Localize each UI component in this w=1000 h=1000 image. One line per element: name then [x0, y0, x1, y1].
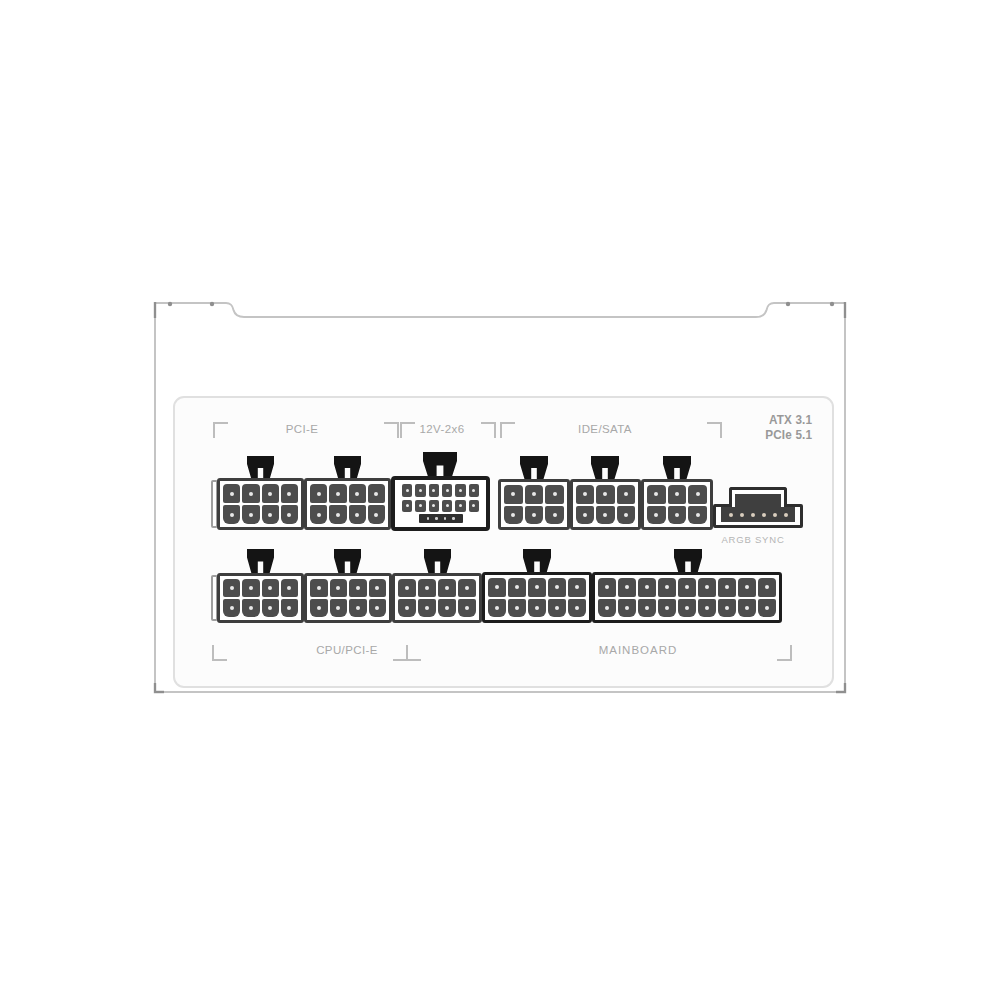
- pin-socket: [281, 579, 298, 597]
- pin-socket: [438, 579, 456, 597]
- pin-socket: [223, 505, 240, 524]
- pin-socket: [368, 505, 385, 524]
- pin-socket: [758, 599, 776, 618]
- pin-socket: [349, 599, 367, 617]
- pin-socket: [242, 505, 259, 524]
- pin-socket: [242, 484, 259, 503]
- pin-socket: [548, 578, 566, 597]
- connector-cpu-pcie-1: [217, 573, 304, 623]
- screw: [830, 302, 834, 306]
- screw: [210, 302, 214, 306]
- argb-sync-pin-row: [721, 507, 795, 522]
- pin-socket: [618, 578, 636, 597]
- pin-socket: [455, 484, 465, 497]
- pin-socket: [545, 506, 564, 525]
- pin-socket: [525, 485, 544, 504]
- pin-socket: [528, 578, 546, 597]
- pin-socket: [576, 485, 594, 504]
- section-corner-bracket: [400, 422, 415, 438]
- pin-socket: [329, 505, 346, 524]
- pin-socket: [738, 599, 756, 618]
- psu-product-image: PCI-E 12V-2x6 IDE/SATA CPU/PCI-E MAINBOA…: [0, 0, 1000, 1000]
- pin-socket: [718, 578, 736, 597]
- section-corner-bracket: [384, 422, 399, 438]
- pin-socket: [458, 599, 476, 617]
- pin-socket: [329, 484, 346, 503]
- pin-socket: [438, 599, 456, 617]
- pin-socket: [310, 579, 328, 597]
- pin-socket: [242, 579, 259, 597]
- pin-socket: [223, 599, 240, 617]
- badge-atx: ATX 3.1: [765, 412, 812, 427]
- pin-socket: [415, 500, 425, 513]
- pin-socket: [415, 484, 425, 497]
- pin-socket: [223, 484, 240, 503]
- screw: [168, 302, 172, 306]
- connector-ide-sata-3: [641, 479, 713, 530]
- pin-socket: [262, 599, 279, 617]
- pin-socket: [429, 500, 439, 513]
- pin-socket: [398, 579, 416, 597]
- pin-socket: [617, 506, 635, 525]
- pin-socket: [349, 505, 366, 524]
- sense-pin: [435, 517, 438, 520]
- pin-socket: [548, 599, 566, 618]
- pin-socket: [658, 578, 676, 597]
- section-corner-bracket: [213, 422, 228, 438]
- section-corner-bracket: [777, 645, 792, 661]
- section-corner-bracket: [500, 422, 515, 438]
- pin-socket: [310, 599, 328, 617]
- connector-mainboard-1: [482, 572, 592, 623]
- pin-socket: [402, 484, 412, 497]
- pin-socket: [488, 599, 506, 618]
- connector-12v-2x6: [391, 476, 490, 531]
- badge-pcie: PCIe 5.1: [765, 427, 812, 442]
- connector-ide-sata-1: [498, 479, 570, 530]
- pin-socket: [330, 579, 348, 597]
- pin-socket: [349, 484, 366, 503]
- pin-socket: [688, 485, 707, 504]
- pin-socket: [617, 485, 635, 504]
- argb-pin: [773, 513, 777, 517]
- section-label-mainboard: MAINBOARD: [599, 644, 678, 656]
- pin-socket: [647, 485, 666, 504]
- pin-socket: [638, 599, 656, 618]
- pin-socket: [618, 599, 636, 618]
- sense-pin: [427, 517, 430, 520]
- pin-socket: [369, 579, 387, 597]
- section-corner-bracket: [212, 645, 227, 661]
- pin-socket: [369, 599, 387, 617]
- connector-pcie-2: [304, 478, 391, 530]
- pin-socket: [469, 484, 479, 497]
- pin-socket: [418, 599, 436, 617]
- pin-socket: [281, 484, 298, 503]
- pin-socket: [668, 506, 687, 525]
- pin-socket: [458, 579, 476, 597]
- pin-socket: [349, 579, 367, 597]
- connector-cpu-pcie-3: [392, 573, 482, 623]
- section-label-ide-sata: IDE/SATA: [578, 423, 632, 435]
- pin-socket: [638, 578, 656, 597]
- pin-socket: [508, 599, 526, 618]
- pin-socket: [568, 599, 586, 618]
- screw: [786, 302, 790, 306]
- pin-socket: [330, 599, 348, 617]
- pin-socket: [658, 599, 676, 618]
- argb-sync-label: ARGB SYNC: [721, 534, 784, 545]
- pin-socket: [596, 506, 614, 525]
- pin-socket: [678, 578, 696, 597]
- pin-socket: [528, 599, 546, 618]
- connector-ide-sata-2: [570, 479, 641, 530]
- pin-socket: [678, 599, 696, 618]
- pin-socket: [455, 500, 465, 513]
- pin-socket: [281, 505, 298, 524]
- pin-socket: [262, 484, 279, 503]
- pin-socket: [223, 579, 240, 597]
- pin-socket: [698, 599, 716, 618]
- pin-socket: [718, 599, 736, 618]
- argb-sync-inner-top: [735, 494, 781, 508]
- pin-socket: [504, 485, 523, 504]
- pin-socket: [442, 484, 452, 497]
- pin-socket: [508, 578, 526, 597]
- argb-pin: [784, 513, 788, 517]
- argb-pin: [751, 513, 755, 517]
- pin-socket: [488, 578, 506, 597]
- pin-socket: [568, 578, 586, 597]
- pin-socket: [504, 506, 523, 525]
- argb-pin: [740, 513, 744, 517]
- connector-mainboard-2: [592, 572, 782, 623]
- pin-socket: [242, 599, 259, 617]
- pin-socket: [647, 506, 666, 525]
- pin-socket: [688, 506, 707, 525]
- pin-socket: [668, 485, 687, 504]
- pin-socket: [576, 506, 594, 525]
- pin-socket: [758, 578, 776, 597]
- pin-socket: [398, 599, 416, 617]
- pin-socket: [698, 578, 716, 597]
- pin-socket: [545, 485, 564, 504]
- pin-socket: [281, 599, 298, 617]
- sense-pin: [444, 517, 447, 520]
- pin-socket: [598, 599, 616, 618]
- pin-socket: [310, 505, 327, 524]
- section-corner-bracket: [707, 422, 722, 438]
- section-corner-bracket: [481, 422, 496, 438]
- connector-cpu-pcie-2: [304, 573, 392, 623]
- section-label-12v-2x6: 12V-2x6: [420, 423, 465, 435]
- section-corner-bracket: [406, 645, 421, 661]
- pin-socket: [442, 500, 452, 513]
- pin-socket: [738, 578, 756, 597]
- sense-pin-strip: [419, 514, 463, 523]
- standards-badge: ATX 3.1 PCIe 5.1: [765, 412, 812, 442]
- pin-socket: [525, 506, 544, 525]
- pin-socket: [598, 578, 616, 597]
- sense-pin: [452, 517, 455, 520]
- argb-pin: [729, 513, 733, 517]
- pin-socket: [418, 579, 436, 597]
- pin-socket: [429, 484, 439, 497]
- pin-socket: [402, 500, 412, 513]
- section-label-cpu-pcie: CPU/PCI-E: [316, 644, 378, 656]
- pin-socket: [262, 505, 279, 524]
- pin-socket: [596, 485, 614, 504]
- pin-socket: [310, 484, 327, 503]
- pin-socket: [262, 579, 279, 597]
- argb-pin: [762, 513, 766, 517]
- connector-pcie-1: [217, 478, 304, 530]
- pin-socket: [368, 484, 385, 503]
- pin-socket: [469, 500, 479, 513]
- section-label-pcie: PCI-E: [286, 423, 319, 435]
